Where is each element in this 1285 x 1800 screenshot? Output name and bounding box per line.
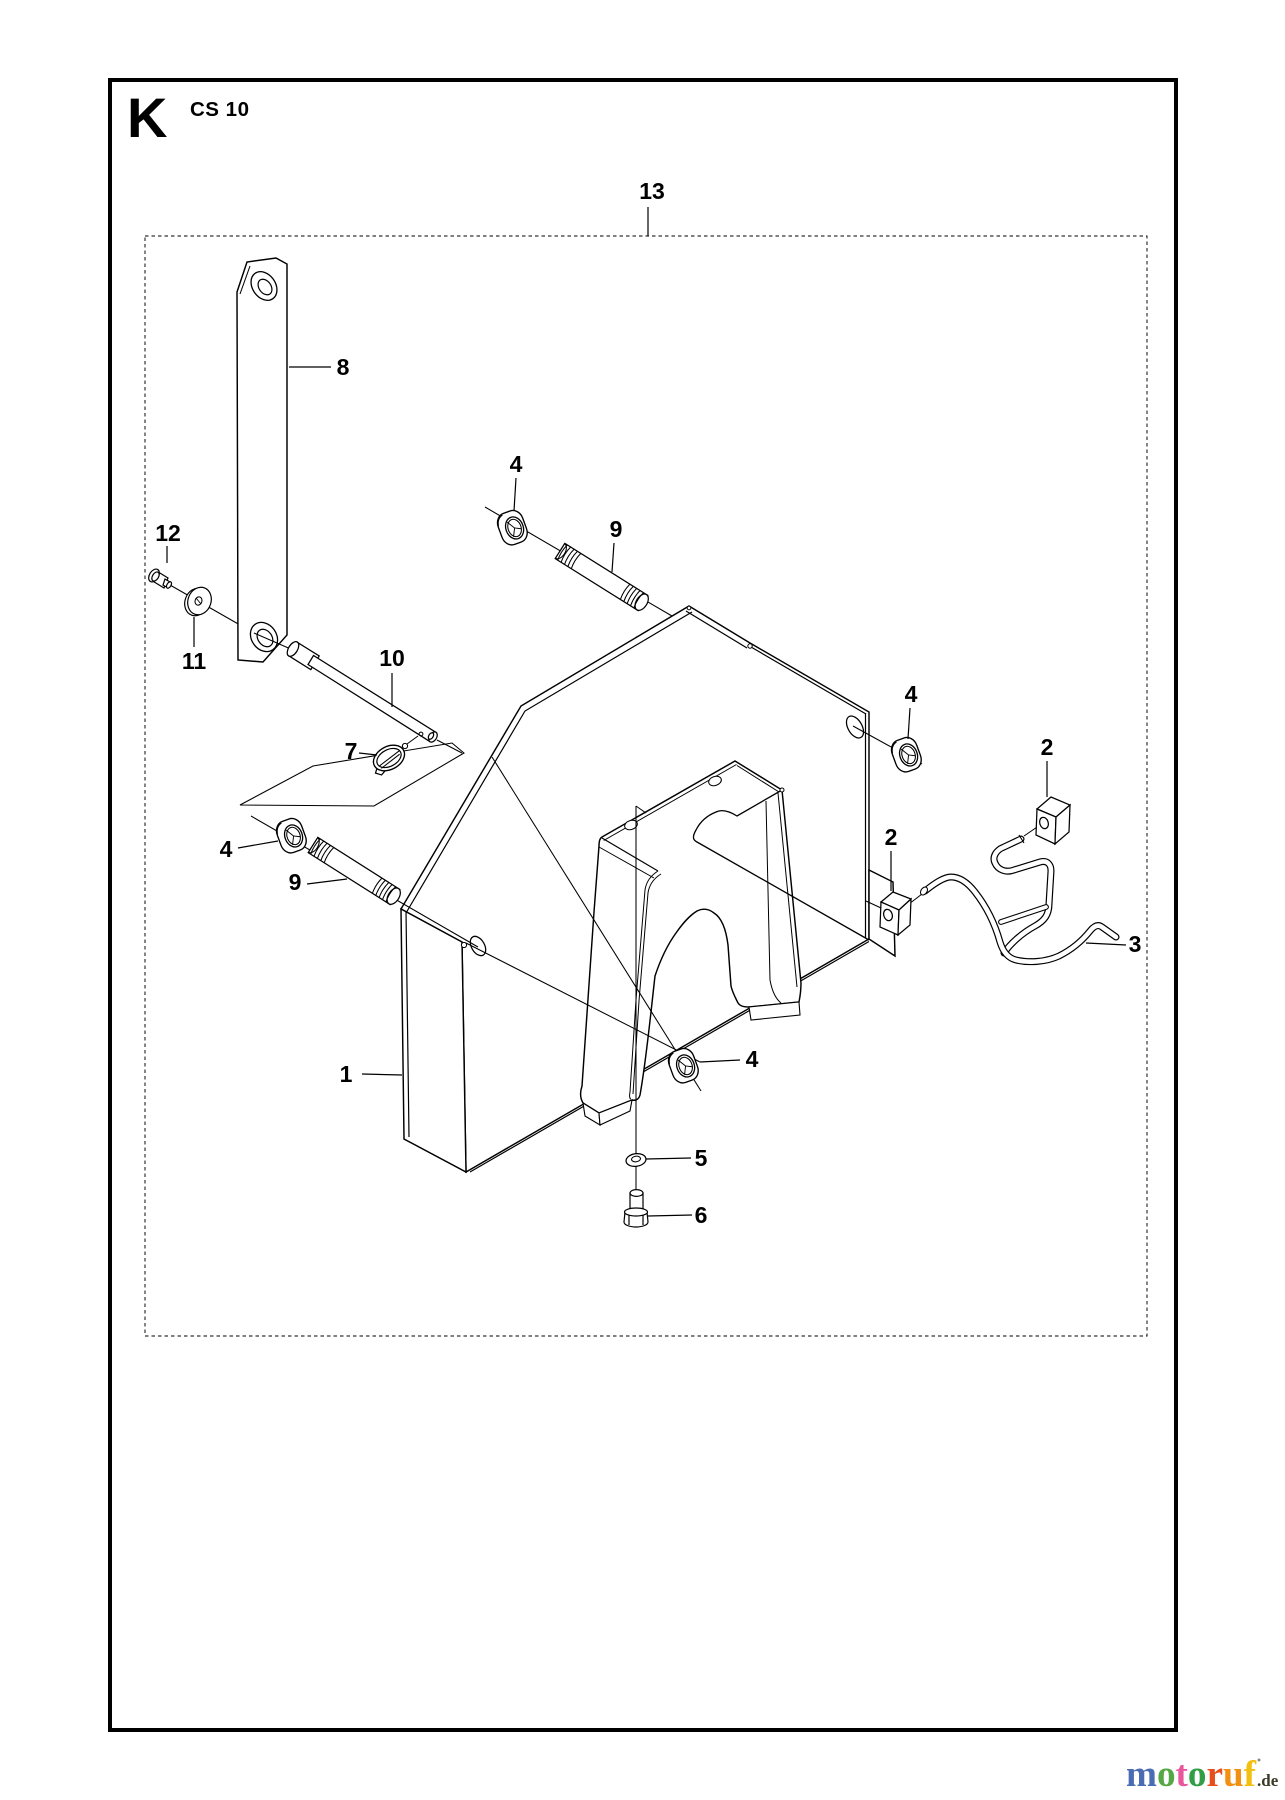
svg-text:4: 4: [220, 836, 233, 862]
svg-text:4: 4: [905, 681, 918, 707]
svg-text:2: 2: [1041, 734, 1054, 760]
svg-text:K: K: [127, 86, 167, 149]
svg-text:.de: .de: [1257, 1771, 1279, 1790]
svg-text:6: 6: [695, 1202, 708, 1228]
svg-text:9: 9: [610, 516, 623, 542]
svg-text:10: 10: [379, 645, 405, 671]
svg-text:1: 1: [340, 1061, 353, 1087]
svg-text:3: 3: [1129, 931, 1142, 957]
svg-text:11: 11: [182, 648, 207, 674]
svg-text:motoruf: motoruf: [1126, 1754, 1257, 1795]
svg-text:5: 5: [695, 1145, 708, 1171]
svg-text:12: 12: [155, 520, 181, 546]
svg-text:9: 9: [289, 869, 302, 895]
svg-text:4: 4: [746, 1046, 759, 1072]
svg-text:13: 13: [639, 178, 665, 204]
svg-text:7: 7: [345, 738, 358, 764]
svg-text:8: 8: [337, 354, 350, 380]
svg-text:CS 10: CS 10: [190, 98, 249, 121]
svg-text:2: 2: [885, 824, 898, 850]
svg-text:4: 4: [510, 451, 523, 477]
